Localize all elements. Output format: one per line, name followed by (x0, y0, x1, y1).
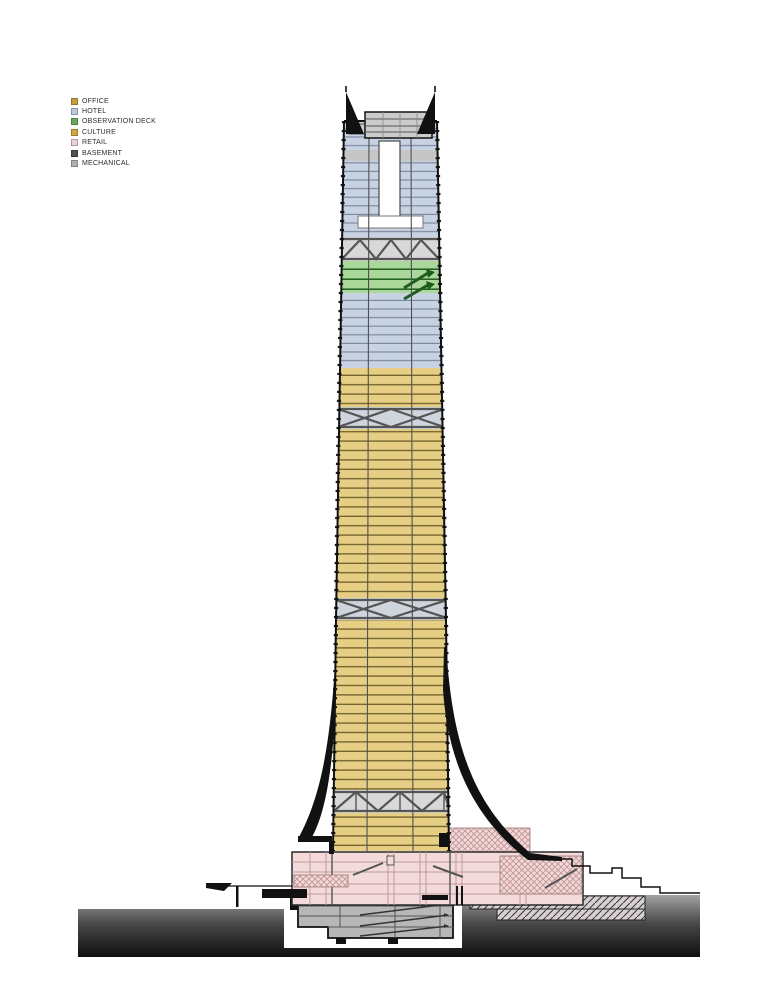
mechanical-truss-1 (300, 237, 480, 261)
section-diagram-page: OFFICE HOTEL OBSERVATION DECK CULTURE RE… (0, 0, 768, 1007)
retail-hatch-right (500, 856, 582, 894)
mechanical-truss-2 (300, 407, 480, 429)
tower-section-drawing (0, 0, 768, 1007)
base-flare-left (298, 648, 336, 854)
mechanical-truss-3 (300, 598, 480, 620)
mechanical-truss-4 (300, 790, 480, 813)
retail-hatch-left (294, 875, 348, 887)
